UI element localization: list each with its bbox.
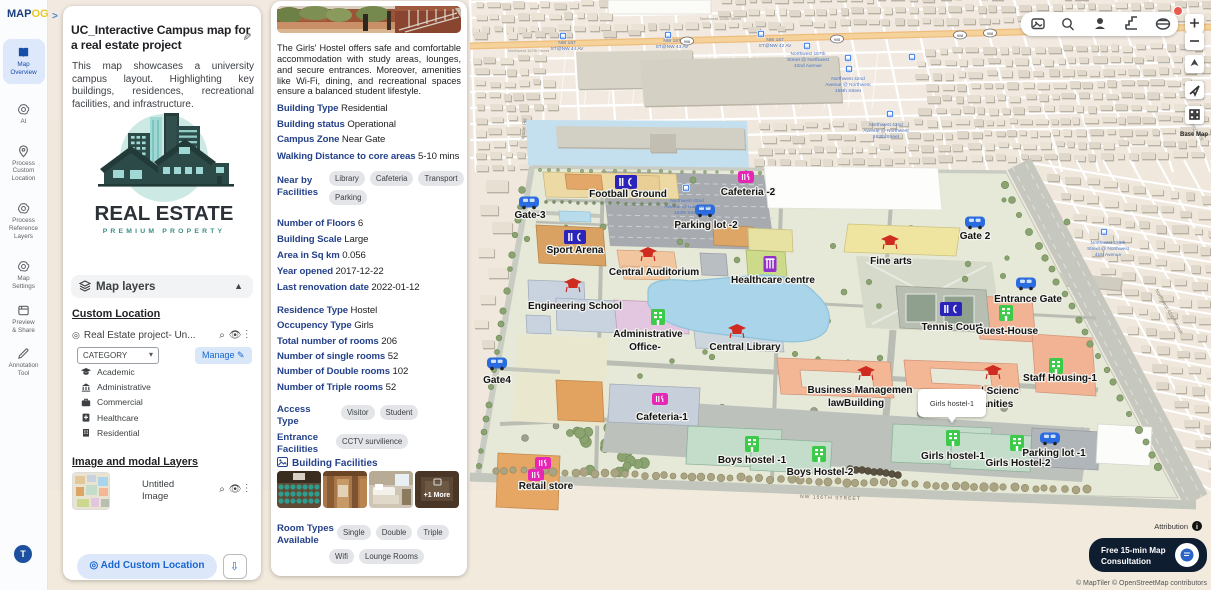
- svg-text:Office-: Office-: [629, 342, 661, 353]
- svg-text:Retail store: Retail store: [519, 481, 574, 492]
- svg-text:Cafeteria -2: Cafeteria -2: [721, 187, 776, 198]
- svg-text:Free 15-min Map: Free 15-min Map: [1101, 546, 1166, 555]
- svg-text:Fine arts: Fine arts: [870, 256, 912, 267]
- svg-text:908: 908: [684, 40, 690, 44]
- svg-text:Boys hostel -1: Boys hostel -1: [718, 455, 787, 466]
- svg-text:+1 More: +1 More: [424, 492, 451, 499]
- svg-text:Girls hostel-1: Girls hostel-1: [930, 399, 974, 408]
- svg-text:REAL ESTATE: REAL ESTATE: [95, 202, 234, 225]
- svg-text:i: i: [1196, 524, 1198, 531]
- svg-text:Girls hostel-1: Girls hostel-1: [921, 451, 985, 462]
- svg-text:Gate 2: Gate 2: [960, 231, 991, 242]
- svg-text:PREMIUM PROPERTY: PREMIUM PROPERTY: [103, 228, 226, 235]
- svg-text:Healthcare centre: Healthcare centre: [731, 275, 815, 286]
- svg-text:Football Ground: Football Ground: [589, 189, 667, 200]
- svg-text:908: 908: [834, 38, 840, 42]
- svg-text:Attribution: Attribution: [1154, 522, 1188, 531]
- svg-text:>: >: [52, 11, 58, 22]
- svg-text:Central Library: Central Library: [709, 342, 781, 353]
- svg-text:lawBuilding: lawBuilding: [828, 398, 884, 409]
- svg-text:Gate4: Gate4: [483, 375, 511, 386]
- svg-text:Tennis Court: Tennis Court: [922, 322, 984, 333]
- svg-text:Entrance Gate: Entrance Gate: [994, 294, 1062, 305]
- svg-text:Guest-House: Guest-House: [976, 326, 1039, 337]
- svg-text:Base Map: Base Map: [1180, 132, 1208, 138]
- svg-text:Girls Hostel-2: Girls Hostel-2: [985, 458, 1050, 469]
- svg-text:Northwest 165th Street: Northwest 165th Street: [700, 16, 742, 21]
- svg-text:Gate-3: Gate-3: [514, 210, 546, 221]
- svg-text:Parking lot -2: Parking lot -2: [674, 220, 738, 231]
- svg-text:l Scienc: l Scienc: [981, 386, 1019, 397]
- svg-text:Northwest 167th Street: Northwest 167th Street: [508, 48, 550, 53]
- svg-text:908: 908: [957, 34, 963, 38]
- svg-text:Consultation: Consultation: [1101, 557, 1151, 566]
- svg-text:© MapTiler © OpenStreetMap con: © MapTiler © OpenStreetMap contributors: [1076, 579, 1208, 587]
- svg-text:908: 908: [987, 32, 993, 36]
- svg-text:Boys Hostel-2: Boys Hostel-2: [787, 467, 854, 478]
- svg-text:Engineering School: Engineering School: [528, 301, 622, 312]
- svg-text:Sport Arena: Sport Arena: [547, 245, 604, 256]
- svg-text:Cafeteria-1: Cafeteria-1: [636, 412, 688, 423]
- svg-text:Parking lot -1: Parking lot -1: [1022, 448, 1086, 459]
- svg-text:Administrative: Administrative: [613, 329, 683, 340]
- svg-text:Staff Housing-1: Staff Housing-1: [1023, 373, 1097, 384]
- svg-text:Business Managemen: Business Managemen: [807, 385, 912, 396]
- svg-text:Central Auditorium: Central Auditorium: [609, 267, 699, 278]
